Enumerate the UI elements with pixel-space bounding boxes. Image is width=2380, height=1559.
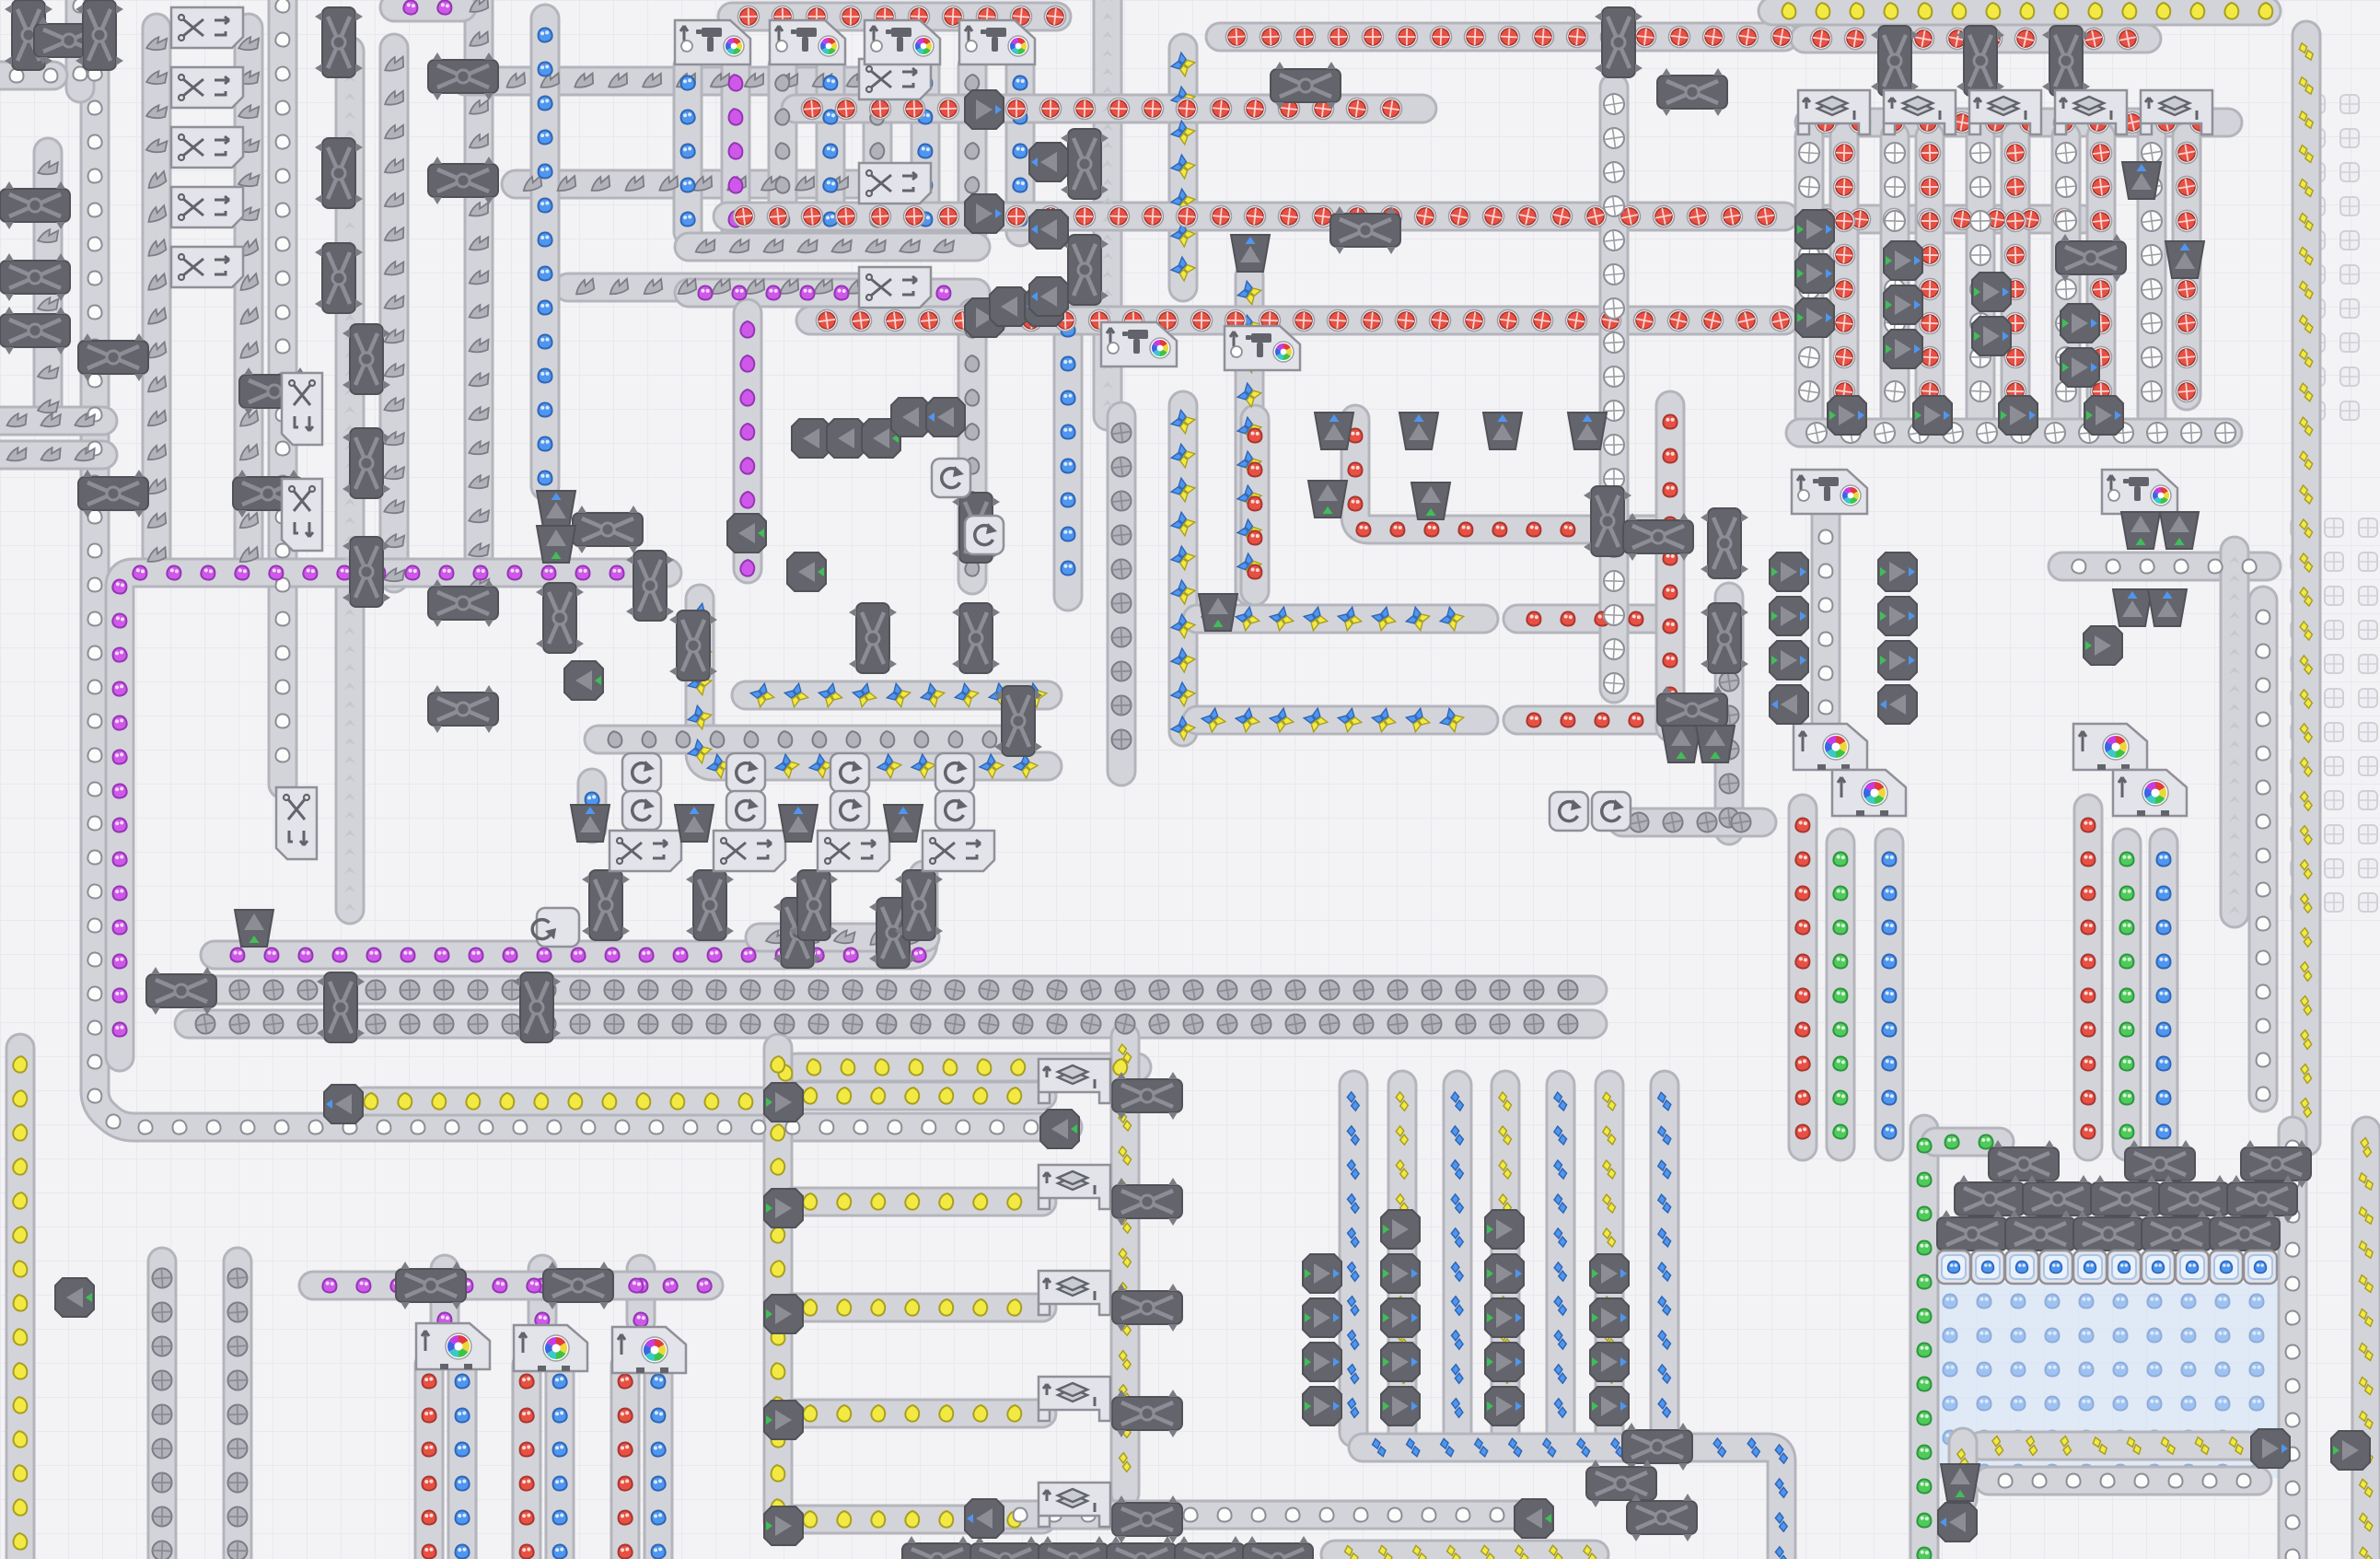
merger-building[interactable] <box>1972 317 2011 355</box>
balancer-building[interactable] <box>342 324 390 394</box>
merger-building[interactable] <box>1381 1298 1420 1337</box>
merger-building[interactable] <box>1938 1503 1977 1542</box>
tunnel-in-building[interactable] <box>1399 413 1438 449</box>
balancer-building[interactable] <box>0 181 70 229</box>
balancer-building[interactable] <box>1243 1536 1313 1559</box>
merger-building[interactable] <box>1999 396 2038 435</box>
shape-items-berG <box>2119 852 2135 1139</box>
shape-items-fanG <box>575 279 866 295</box>
rotator-building[interactable] <box>622 753 661 792</box>
balancer-building[interactable] <box>1112 1178 1182 1226</box>
merger-building[interactable] <box>1770 685 1808 724</box>
merger-building[interactable] <box>827 419 865 458</box>
merger-building[interactable] <box>926 398 965 436</box>
balancer-building[interactable] <box>1175 1536 1245 1559</box>
balancer-building[interactable] <box>1112 1390 1182 1437</box>
tunnel-in-building[interactable] <box>2165 241 2204 278</box>
tunnel-in-building[interactable] <box>1315 413 1353 449</box>
tunnel-in-building[interactable] <box>2148 589 2187 626</box>
stacker-building[interactable] <box>1039 1377 1110 1421</box>
tunnel-in-building[interactable] <box>2113 589 2152 626</box>
merger-building[interactable] <box>727 514 766 553</box>
merger-building[interactable] <box>1303 1387 1341 1425</box>
balancer-building[interactable] <box>1112 1284 1182 1332</box>
balancer-building[interactable] <box>78 333 148 381</box>
balancer-building[interactable] <box>513 972 561 1042</box>
painter-building[interactable] <box>865 20 940 64</box>
rotator-building[interactable] <box>726 753 765 792</box>
miner-building[interactable] <box>1971 1251 2004 1284</box>
balancer-building[interactable] <box>1623 513 1693 561</box>
merger-building[interactable] <box>2084 396 2123 435</box>
mixer-building[interactable] <box>2073 724 2147 770</box>
merger-building[interactable] <box>2331 1431 2370 1470</box>
miner-building[interactable] <box>1937 1251 1970 1284</box>
painter-building[interactable] <box>1225 326 1300 370</box>
balancer-building[interactable] <box>536 583 584 653</box>
balancer-building[interactable] <box>317 972 365 1042</box>
shape-items-tearY <box>1781 2 2272 20</box>
tunnel-out-building[interactable] <box>1662 726 1701 762</box>
merger-building[interactable] <box>787 553 826 591</box>
balancer-building[interactable] <box>1657 68 1727 116</box>
cutter-building[interactable] <box>171 7 243 48</box>
merger-building[interactable] <box>1381 1210 1420 1249</box>
factory-map-viewport[interactable] <box>0 0 2380 1559</box>
merger-building[interactable] <box>764 1401 803 1439</box>
cutter-building[interactable] <box>714 831 785 871</box>
shape-items-berB <box>1881 852 1898 1140</box>
merger-building[interactable] <box>764 1295 803 1333</box>
merger-building[interactable] <box>1795 254 1834 293</box>
merger-building[interactable] <box>1590 1254 1629 1293</box>
cutter-building[interactable] <box>282 479 322 551</box>
balancer-building[interactable] <box>1989 1140 2059 1188</box>
tunnel-out-building[interactable] <box>2160 512 2199 549</box>
rotator180-building[interactable] <box>532 908 579 947</box>
balancer-building[interactable] <box>895 870 943 940</box>
mixer-building[interactable] <box>416 1323 490 1369</box>
balancer-building[interactable] <box>75 0 123 70</box>
merger-building[interactable] <box>1381 1343 1420 1381</box>
merger-building[interactable] <box>1303 1254 1341 1293</box>
merger-building[interactable] <box>1381 1254 1420 1293</box>
shape-items-berW <box>2255 609 2271 1101</box>
rotator-building[interactable] <box>830 791 869 830</box>
merger-building[interactable] <box>764 1507 803 1545</box>
merger-building[interactable] <box>2084 626 2122 665</box>
cutter-building[interactable] <box>282 373 322 445</box>
tunnel-in-building[interactable] <box>1231 235 1270 272</box>
tunnel-in-building[interactable] <box>571 805 610 842</box>
balancer-building[interactable] <box>146 967 216 1015</box>
shape-items-berR <box>1663 415 1678 703</box>
painter-building[interactable] <box>2102 470 2177 514</box>
balancer-building[interactable] <box>1956 26 2004 96</box>
merger-building[interactable] <box>965 1499 1004 1538</box>
miner-building[interactable] <box>2142 1251 2175 1284</box>
merger-building[interactable] <box>564 661 603 700</box>
tunnel-out-building[interactable] <box>1696 726 1735 762</box>
merger-building[interactable] <box>1590 1298 1629 1337</box>
merger-building[interactable] <box>1590 1343 1629 1381</box>
tunnel-out-building[interactable] <box>2121 512 2160 549</box>
balancer-building[interactable] <box>573 506 643 553</box>
shape-items-pieG <box>227 1268 249 1559</box>
stacker-building[interactable] <box>1039 1271 1110 1315</box>
stacker-building[interactable] <box>1039 1165 1110 1209</box>
balancer-building[interactable] <box>2125 1140 2195 1188</box>
cutter-building[interactable] <box>610 831 681 871</box>
balancer-building[interactable] <box>1871 26 1919 96</box>
merger-building[interactable] <box>1029 143 1068 181</box>
merger-building[interactable] <box>1485 1298 1524 1337</box>
shape-items-pieR <box>815 308 1794 332</box>
balancer-building[interactable] <box>1271 62 1341 110</box>
balancer-building[interactable] <box>2227 1175 2297 1223</box>
rotator-building[interactable] <box>935 753 974 792</box>
painter-building[interactable] <box>770 20 845 64</box>
cutter-building[interactable] <box>859 163 931 204</box>
balancer-building[interactable] <box>849 603 897 673</box>
merger-building[interactable] <box>2061 348 2099 387</box>
tunnel-in-building[interactable] <box>779 805 818 842</box>
merger-building[interactable] <box>1770 553 1808 591</box>
rotator-building[interactable] <box>622 791 661 830</box>
painter-building[interactable] <box>959 20 1035 64</box>
merger-building[interactable] <box>1878 685 1917 724</box>
balancer-building[interactable] <box>952 603 1000 673</box>
shape-items-pieG <box>152 1268 172 1559</box>
tunnel-in-building[interactable] <box>884 805 923 842</box>
painter-building[interactable] <box>1101 322 1177 366</box>
shape-items-berG <box>1832 852 1849 1140</box>
balancer-building[interactable] <box>669 611 717 681</box>
tunnel-out-building[interactable] <box>537 526 575 563</box>
rotator-building[interactable] <box>830 753 869 792</box>
merger-building[interactable] <box>1485 1254 1524 1293</box>
mixer-building[interactable] <box>2113 770 2187 816</box>
cutter-building[interactable] <box>171 127 243 168</box>
balancer-building[interactable] <box>582 870 630 940</box>
merger-building[interactable] <box>1590 1387 1629 1425</box>
cutter-building[interactable] <box>171 67 243 108</box>
merger-building[interactable] <box>1972 273 2011 311</box>
balancer-building[interactable] <box>342 428 390 498</box>
mixer-building[interactable] <box>1794 724 1867 770</box>
merger-building[interactable] <box>1913 396 1952 435</box>
merger-building[interactable] <box>1884 330 1922 368</box>
balancer-building[interactable] <box>790 870 838 940</box>
miner-building[interactable] <box>2005 1251 2038 1284</box>
merger-building[interactable] <box>764 1083 803 1122</box>
factory-canvas[interactable] <box>0 0 2380 1559</box>
tunnel-in-building[interactable] <box>675 805 714 842</box>
balancer-building[interactable] <box>315 243 363 313</box>
balancer-building[interactable] <box>994 686 1042 756</box>
merger-building[interactable] <box>1515 1499 1553 1538</box>
rotator-building[interactable] <box>935 791 974 830</box>
mixer-building[interactable] <box>514 1325 587 1371</box>
balancer-building[interactable] <box>0 253 70 301</box>
merger-building[interactable] <box>2251 1429 2290 1468</box>
merger-building[interactable] <box>1770 597 1808 635</box>
merger-building[interactable] <box>891 398 930 436</box>
cutter-building[interactable] <box>171 247 243 287</box>
tunnel-out-building[interactable] <box>235 910 273 947</box>
merger-building[interactable] <box>965 194 1004 233</box>
merger-building[interactable] <box>1884 285 1922 324</box>
balancer-building[interactable] <box>315 7 363 77</box>
balancer-building[interactable] <box>396 1262 466 1309</box>
tunnel-in-building[interactable] <box>2122 162 2161 199</box>
balancer-building[interactable] <box>0 307 70 355</box>
merger-building[interactable] <box>990 287 1028 326</box>
merger-building[interactable] <box>1795 210 1834 249</box>
merger-building[interactable] <box>965 90 1004 129</box>
merger-building[interactable] <box>792 419 830 458</box>
miner-building[interactable] <box>2073 1251 2107 1284</box>
mixer-building[interactable] <box>1832 770 1906 816</box>
shape-items-pieR <box>1225 25 1794 49</box>
merger-building[interactable] <box>1795 298 1834 337</box>
balancer-building[interactable] <box>2042 26 2090 96</box>
merger-building[interactable] <box>1485 1343 1524 1381</box>
balancer-building[interactable] <box>78 470 148 518</box>
rotator-building[interactable] <box>932 459 970 497</box>
rotator-building[interactable] <box>965 516 1004 554</box>
tunnel-in-building[interactable] <box>1568 413 1607 449</box>
balancer-building[interactable] <box>1330 206 1400 254</box>
merger-building[interactable] <box>1884 241 1922 280</box>
merger-building[interactable] <box>1029 277 1068 316</box>
balancer-building[interactable] <box>428 52 498 100</box>
merger-building[interactable] <box>1878 597 1917 635</box>
merger-building[interactable] <box>1878 553 1917 591</box>
merger-building[interactable] <box>2061 304 2099 343</box>
balancer-building[interactable] <box>1039 1536 1109 1559</box>
merger-building[interactable] <box>1303 1343 1341 1381</box>
balancer-building[interactable] <box>1627 1494 1697 1542</box>
balancer-building[interactable] <box>342 537 390 607</box>
merger-building[interactable] <box>55 1278 94 1317</box>
merger-building[interactable] <box>1485 1387 1524 1425</box>
balancer-building[interactable] <box>1107 1536 1177 1559</box>
tunnel-out-building[interactable] <box>1199 594 1237 631</box>
tunnel-out-building[interactable] <box>1941 1464 1979 1501</box>
merger-building[interactable] <box>324 1085 363 1123</box>
merger-building[interactable] <box>1381 1387 1420 1425</box>
balancer-building[interactable] <box>1701 508 1748 578</box>
balancer-building[interactable] <box>1595 7 1643 77</box>
rotator-building[interactable] <box>726 791 765 830</box>
rotator-building[interactable] <box>1550 792 1588 831</box>
balancer-building[interactable] <box>428 579 498 627</box>
balancer-building[interactable] <box>2056 234 2126 282</box>
balancer-building[interactable] <box>686 870 734 940</box>
shape-items-berB <box>2156 852 2171 1139</box>
balancer-building[interactable] <box>626 551 674 621</box>
balancer-building[interactable] <box>543 1262 613 1309</box>
merger-building[interactable] <box>1485 1210 1524 1249</box>
balancer-building[interactable] <box>1622 1423 1692 1471</box>
miner-building[interactable] <box>2176 1251 2209 1284</box>
balancer-building[interactable] <box>428 685 498 733</box>
balancer-building[interactable] <box>1701 603 1748 673</box>
mixer-building[interactable] <box>612 1327 686 1373</box>
cutter-building[interactable] <box>923 831 994 871</box>
merger-building[interactable] <box>1878 641 1917 680</box>
tunnel-out-building[interactable] <box>1411 483 1450 519</box>
rotator-building[interactable] <box>1592 792 1631 831</box>
balancer-building[interactable] <box>1112 1072 1182 1120</box>
miner-building[interactable] <box>2039 1251 2072 1284</box>
balancer-building[interactable] <box>902 1536 972 1559</box>
cutter-building[interactable] <box>818 831 889 871</box>
balancer-building[interactable] <box>315 138 363 208</box>
merger-building[interactable] <box>1770 641 1808 680</box>
cutter-building[interactable] <box>276 787 317 859</box>
merger-building[interactable] <box>1303 1298 1341 1337</box>
shape-items-tearY <box>12 1055 29 1550</box>
miner-building[interactable] <box>2244 1251 2277 1284</box>
cutter-building[interactable] <box>171 187 243 227</box>
balancer-building[interactable] <box>2241 1140 2311 1188</box>
miner-building[interactable] <box>2210 1251 2243 1284</box>
miner-building[interactable] <box>2107 1251 2141 1284</box>
tunnel-in-building[interactable] <box>1483 413 1522 449</box>
painter-building[interactable] <box>1792 470 1867 514</box>
balancer-building[interactable] <box>1112 1495 1182 1543</box>
merger-building[interactable] <box>1029 210 1068 249</box>
balancer-building[interactable] <box>970 1536 1040 1559</box>
tunnel-out-building[interactable] <box>1308 481 1347 518</box>
tunnel-in-building[interactable] <box>537 491 575 528</box>
merger-building[interactable] <box>1040 1110 1079 1148</box>
balancer-building[interactable] <box>428 157 498 204</box>
merger-building[interactable] <box>1828 396 1866 435</box>
merger-building[interactable] <box>764 1189 803 1227</box>
cutter-building[interactable] <box>859 267 931 308</box>
painter-building[interactable] <box>675 20 750 64</box>
stacker-building[interactable] <box>1039 1059 1110 1103</box>
